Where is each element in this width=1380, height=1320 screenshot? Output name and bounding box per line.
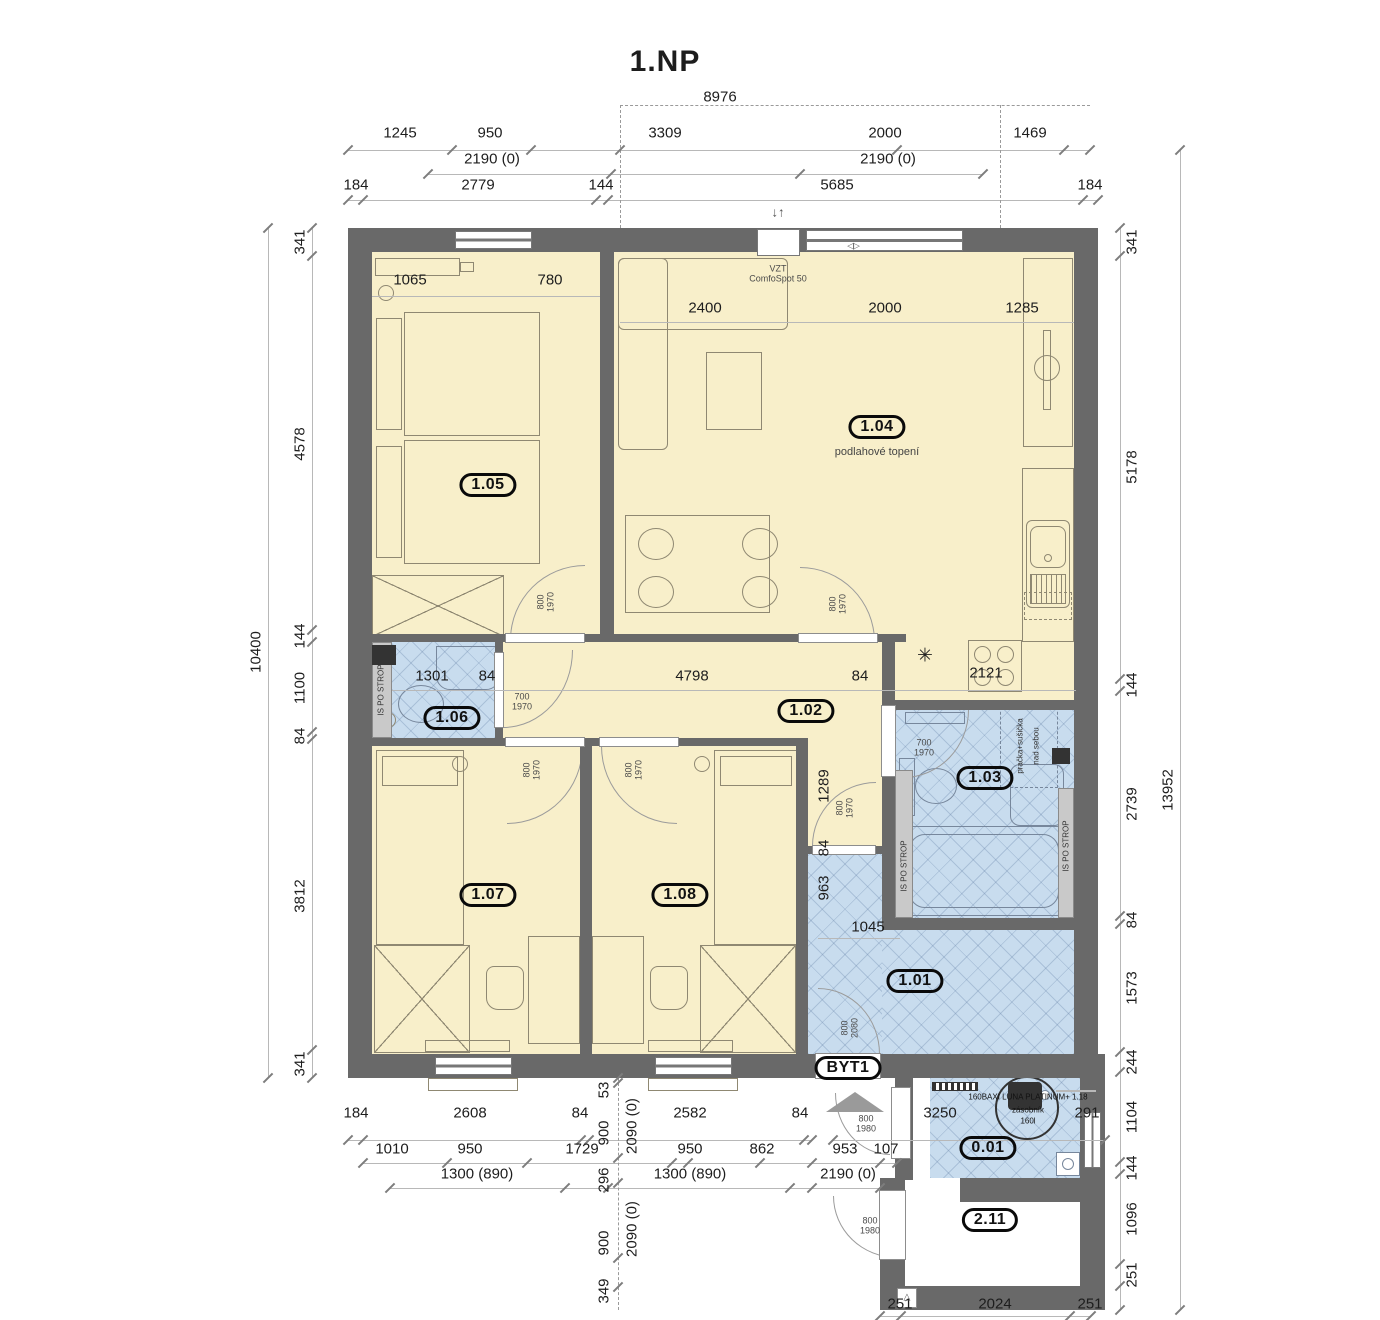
wardrobe-108 [700,945,796,1053]
dim-label: 84 [292,728,309,745]
room-label-byt1: BYT1 [815,1056,882,1080]
window-104 [806,230,963,251]
dim-label: 2582 [673,1105,706,1122]
dim-label: 2190 (0) [860,151,916,168]
dim-label: 3812 [292,879,309,912]
dim-label: 1065 [393,272,426,289]
dim-label: 184 [1077,177,1102,194]
wall-hall-kitchen [882,634,895,920]
dim-line [1180,150,1181,1310]
drain-001 [1062,1158,1074,1170]
door-size-001: 8001980 [856,1115,876,1134]
dim-label: 84 [572,1105,589,1122]
dim-label: 5178 [1124,450,1141,483]
dim-label: 950 [677,1141,702,1158]
wall-right [1074,228,1098,1078]
door-mark-icon: △ [904,1292,911,1303]
dim-label: 144 [1124,672,1141,697]
wall-bedrooms-top [372,738,808,746]
dishwasher-dashed [1024,592,1072,620]
sill-108 [648,1078,738,1091]
room-label-101: 1.01 [886,969,943,993]
dim-label: 13952 [1160,769,1177,811]
sliding-window-arrows-icon: ◁▷ [847,241,859,252]
plan-graphic: 1980 [856,1123,876,1133]
wardrobe-107 [374,945,470,1053]
dim-line-dashed [618,1078,619,1310]
plan-graphic: 1970 [837,594,847,614]
bed-105-pillow-2 [376,446,402,558]
chair-104-4 [742,576,778,608]
room-label-103: 1.03 [956,766,1013,790]
sensor-107 [452,756,468,772]
wardrobe-105 [372,575,504,637]
dim-label: 1301 [415,668,448,685]
door-size-104: 8001970 [829,594,848,614]
shaft-note-103-right: IS PO STROP [1062,820,1071,871]
dim-label: 3250 [923,1105,956,1122]
vzt-unit [757,229,800,256]
hob-ring-1 [974,646,991,663]
dim-line [390,1188,880,1189]
plan-graphic: 800 [835,800,845,815]
wall-bathroom-top [895,700,1074,710]
dim-line [392,690,1076,691]
plan-graphic: 2080 [849,1018,859,1038]
dim-label: 2000 [868,125,901,142]
door-size-107: 8001970 [523,760,542,780]
room-label-107: 1.07 [459,883,516,907]
dim-label: 5685 [820,177,853,194]
dim-line [348,200,1098,201]
plan-graphic: 1970 [844,798,854,818]
vzt-note: VZTComfoSpot 50 [749,265,807,284]
valve-icon-103 [1052,748,1070,764]
vent-grille-001 [932,1082,978,1091]
shaft-note-106: IS PO STROP [377,664,386,715]
radiator-105-valve [460,262,474,272]
sink-drain [1044,554,1052,562]
dim-label: 1010 [375,1141,408,1158]
dim-line-dashed [1000,105,1001,228]
dim-label: 900 [596,1120,613,1145]
dim-label: 1573 [1124,971,1141,1004]
door-size-105: 8001970 [537,592,556,612]
dim-label: 2121 [969,665,1002,682]
dim-label: 953 [832,1141,857,1158]
floor-plan: 1.NP [0,0,1380,1320]
door-size-103: 7001970 [914,739,934,758]
dim-label: 291 [1074,1105,1099,1122]
dim-label: 1100 [292,672,309,704]
dim-label: 2000 [868,300,901,317]
dim-label: 963 [816,875,833,900]
plan-graphic: 800 [624,762,634,777]
dim-label: 341 [292,1051,309,1076]
dim-label: 1045 [851,919,884,936]
door-size-106: 7001970 [512,693,532,712]
dim-label: 84 [816,840,833,857]
desk-108 [592,936,644,1044]
sensor-105-top [378,285,394,301]
dim-line-dashed [620,105,621,228]
dim-label: 84 [792,1105,809,1122]
plan-graphic: 800 [536,594,546,609]
door-opening-103 [881,705,896,777]
plan-title: 1.NP [630,45,701,79]
wall-bathroom-bottom [882,918,1074,930]
dim-label: 244 [1124,1049,1141,1074]
desk-107 [528,936,580,1044]
door-size-108: 8001970 [625,760,644,780]
dim-label: 862 [749,1141,774,1158]
dim-label: 84 [1124,912,1141,929]
vent-arrows-icon: ↓↑ [772,205,785,220]
door-opening-107 [505,737,585,747]
bed-105-1 [404,312,540,436]
dim-label: 1245 [383,125,416,142]
dim-label: 1285 [1005,300,1038,317]
room-label-102: 1.02 [777,699,834,723]
plan-graphic: 1980 [860,1225,880,1235]
dim-label: 2090 (0) [624,1201,641,1257]
door-opening-211 [879,1190,906,1260]
sill-107 [428,1078,518,1091]
flue-icon: ✳ [917,645,933,668]
dim-label: 84 [479,668,496,685]
wall-001-211-divider [960,1178,1080,1202]
plan-graphic: 800 [862,1216,877,1226]
plan-graphic: 800 [522,762,532,777]
plan-graphic: 1970 [633,760,643,780]
bed-105-pillow-1 [376,318,402,430]
room-label-211: 2.11 [962,1208,1018,1232]
door-opening-104 [798,633,878,643]
chair-104-3 [742,528,778,560]
dim-line [818,938,900,939]
entrance-canopy [826,1092,884,1112]
dim-label: 1300 (890) [654,1166,727,1183]
dim-label: 3309 [648,125,681,142]
dim-label: 4798 [675,668,708,685]
window-108 [655,1057,732,1075]
wall-107-108 [580,746,592,1054]
plan-graphic: 700 [514,692,529,702]
room-label-104: 1.04 [848,415,905,439]
chair-104-1 [638,528,674,560]
dim-label: 1104 [1124,1101,1141,1133]
chair-104-2 [638,576,674,608]
dim-line [1120,228,1121,1310]
dim-label: 950 [457,1141,482,1158]
dim-label: 2190 (0) [464,151,520,168]
door-opening-105 [505,633,585,643]
window-107 [435,1057,512,1075]
wall-left [348,228,372,1078]
door-opening-108 [599,737,679,747]
dim-label: 84 [852,668,869,685]
door-size-211: 8001980 [860,1217,880,1236]
dim-label: 1469 [1013,125,1046,142]
sensor-108 [694,756,710,772]
dim-line [312,228,313,1078]
tank-note-2: 160l [1020,1117,1035,1126]
sofa-104-side [618,258,668,450]
radiator-107 [425,1040,510,1052]
tank-note-1: zásobník [1012,1106,1044,1115]
tv-lens-104 [1034,355,1060,381]
dim-label: 184 [343,1105,368,1122]
plan-graphic: VZT [769,264,786,274]
bed-107-pillow [382,756,458,786]
dim-label: 144 [588,177,613,194]
dim-line [880,1316,1091,1317]
dim-line [372,296,600,297]
washer-note-2: nad sebou [1032,727,1041,764]
dim-label: 1300 (890) [441,1166,514,1183]
door-size-101: 8001970 [836,798,855,818]
dim-label: 251 [1124,1262,1141,1287]
dim-label: 1096 [1124,1202,1141,1235]
dim-line [428,174,983,175]
dim-line [348,150,1090,151]
dim-label: 144 [1124,1155,1141,1180]
dim-label: 144 [292,623,309,648]
window-105 [455,231,532,249]
dim-label: 2400 [688,300,721,317]
radiator-108 [648,1040,733,1052]
dim-label: 296 [596,1167,613,1192]
valve-icon-106 [372,645,396,665]
side-table-104 [706,352,762,430]
room-label-108: 1.08 [651,883,708,907]
plan-graphic: 1970 [512,701,532,711]
plan-graphic: 800 [858,1114,873,1124]
dim-label: 2779 [461,177,494,194]
dim-label: 4578 [292,427,309,460]
dim-label: 251 [1077,1296,1102,1313]
shaft-note-103-left: IS PO STROP [900,840,909,891]
room-label-001: 0.01 [959,1136,1016,1160]
dim-line-dashed [620,105,1090,106]
dim-label: 900 [596,1230,613,1255]
floor-heating-note: podlahové topení [835,446,919,458]
dim-label: 107 [873,1141,898,1158]
dim-line [620,322,1074,323]
dim-label: 8976 [703,89,736,106]
plan-graphic: 1970 [545,592,555,612]
dim-label: 2608 [453,1105,486,1122]
washer-note-1: pračka+sušička [1016,718,1025,773]
plan-graphic: ComfoSpot 50 [749,273,807,283]
dim-label: 349 [596,1278,613,1303]
dim-label: 2739 [1124,787,1141,820]
room-label-105: 1.05 [459,473,516,497]
dim-label: 950 [477,125,502,142]
door-size-byt1: 8002080 [841,1018,860,1038]
dim-label: 10400 [248,631,265,673]
plan-graphic: 1970 [531,760,541,780]
dim-label: 2024 [978,1296,1011,1313]
wall-105-104 [600,252,614,642]
plan-graphic: 1970 [914,747,934,757]
dim-label: 2190 (0) [820,1166,876,1183]
bathtub-103-inner [909,834,1059,908]
boiler-note: 160BAXI LUNA PLATINUM+ 1.18 [968,1093,1087,1102]
dim-label: 1289 [816,769,833,802]
plan-graphic: 800 [840,1020,850,1035]
chair-108 [650,966,688,1010]
plan-graphic: 700 [916,738,931,748]
dim-label: 2090 (0) [624,1098,641,1154]
dim-label: 184 [343,177,368,194]
chair-107 [486,966,524,1010]
room-label-106: 1.06 [423,706,480,730]
dim-label: 341 [292,229,309,254]
bed-108-pillow [720,756,792,786]
dim-label: 53 [596,1082,613,1099]
wall-108-right [796,738,808,1054]
dim-label: 1729 [565,1141,598,1158]
dim-label: 341 [1124,229,1141,254]
hob-ring-2 [997,646,1014,663]
plan-graphic: 800 [828,596,838,611]
bed-105-2 [404,440,540,564]
dim-line [268,228,269,1078]
dim-label: 780 [537,272,562,289]
